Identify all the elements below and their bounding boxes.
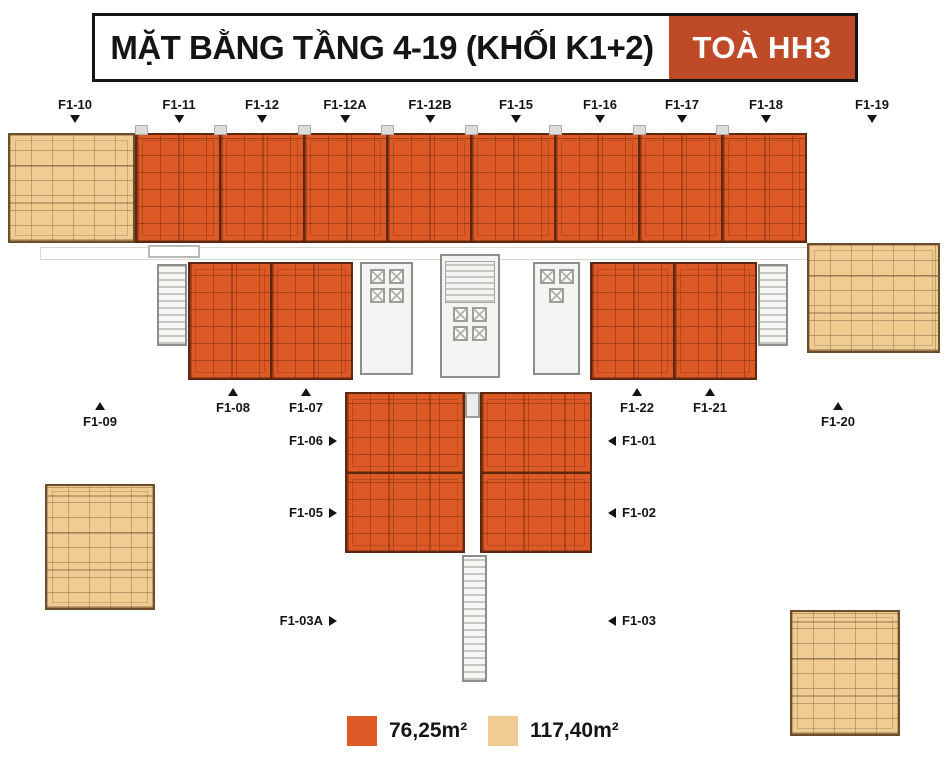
unit-label-f1-01: F1-01 bbox=[608, 433, 656, 448]
mid-left-small-units bbox=[188, 262, 353, 380]
marker-left-icon bbox=[608, 436, 616, 446]
elevator-icon bbox=[540, 269, 555, 284]
unit-label-f1-18: F1-18 bbox=[749, 97, 783, 123]
marker-down-icon bbox=[761, 115, 771, 123]
unit-block-f1-12 bbox=[219, 135, 303, 241]
elevator-icon bbox=[472, 326, 487, 341]
unit-block-f1-07 bbox=[272, 264, 352, 378]
unit-block-f1-06 bbox=[347, 394, 463, 474]
unit-label-f1-21: F1-21 bbox=[693, 388, 727, 415]
elevator-icon bbox=[453, 307, 468, 322]
unit-block-f1-18 bbox=[721, 135, 805, 241]
unit-block-f1-21 bbox=[675, 264, 756, 378]
legend-swatch-small-unit bbox=[347, 716, 377, 746]
unit-label-f1-17: F1-17 bbox=[665, 97, 699, 123]
unit-label-text: F1-15 bbox=[499, 97, 533, 112]
marker-left-icon bbox=[608, 616, 616, 626]
elevator-icon bbox=[549, 288, 564, 303]
marker-down-icon bbox=[425, 115, 435, 123]
stair-core-bottom bbox=[462, 555, 487, 682]
stair-core-right bbox=[758, 264, 788, 346]
unit-label-f1-10: F1-10 bbox=[58, 97, 92, 123]
unit-label-f1-15: F1-15 bbox=[499, 97, 533, 123]
unit-label-text: F1-05 bbox=[289, 505, 323, 520]
marker-down-icon bbox=[677, 115, 687, 123]
marker-down-icon bbox=[174, 115, 184, 123]
unit-block-f1-19 bbox=[807, 243, 940, 353]
elevator-icon bbox=[559, 269, 574, 284]
unit-label-text: F1-09 bbox=[83, 414, 117, 429]
elevator-icon bbox=[389, 288, 404, 303]
elevator-core-left bbox=[360, 262, 413, 375]
marker-left-icon bbox=[608, 508, 616, 518]
mid-right-small-units bbox=[590, 262, 757, 380]
unit-label-text: F1-17 bbox=[665, 97, 699, 112]
service-shaft bbox=[465, 392, 480, 418]
marker-up-icon bbox=[95, 402, 105, 410]
unit-label-text: F1-12 bbox=[245, 97, 279, 112]
unit-block-f1-02 bbox=[482, 474, 590, 552]
marker-up-icon bbox=[228, 388, 238, 396]
unit-label-text: F1-07 bbox=[289, 400, 323, 415]
legend-label-small-unit: 76,25m² bbox=[389, 719, 467, 743]
marker-right-icon bbox=[329, 616, 337, 626]
unit-label-text: F1-16 bbox=[583, 97, 617, 112]
unit-label-f1-02: F1-02 bbox=[608, 505, 656, 520]
tower-badge: TOÀ HH3 bbox=[669, 16, 855, 79]
marker-down-icon bbox=[340, 115, 350, 123]
unit-block-f1-12b bbox=[386, 135, 470, 241]
unit-label-text: F1-08 bbox=[216, 400, 250, 415]
unit-label-f1-19: F1-19 bbox=[855, 97, 889, 123]
unit-label-f1-06: F1-06 bbox=[289, 433, 337, 448]
right-wing-small-units bbox=[480, 392, 592, 553]
elevator-core-right bbox=[533, 262, 580, 375]
unit-label-f1-16: F1-16 bbox=[583, 97, 617, 123]
marker-down-icon bbox=[257, 115, 267, 123]
stair-core-left bbox=[157, 264, 187, 346]
marker-up-icon bbox=[833, 402, 843, 410]
unit-block-f1-16 bbox=[554, 135, 638, 241]
unit-label-text: F1-12B bbox=[408, 97, 451, 112]
unit-label-text: F1-10 bbox=[58, 97, 92, 112]
legend-swatch-large-unit bbox=[488, 716, 518, 746]
unit-label-f1-12a: F1-12A bbox=[323, 97, 366, 123]
unit-label-f1-05: F1-05 bbox=[289, 505, 337, 520]
marker-up-icon bbox=[632, 388, 642, 396]
marker-down-icon bbox=[595, 115, 605, 123]
unit-block-f1-09 bbox=[45, 484, 155, 610]
marker-up-icon bbox=[301, 388, 311, 396]
unit-label-text: F1-02 bbox=[622, 505, 656, 520]
marker-down-icon bbox=[867, 115, 877, 123]
elevator-core-center bbox=[440, 254, 500, 378]
unit-label-f1-03a: F1-03A bbox=[280, 613, 337, 628]
unit-label-text: F1-20 bbox=[821, 414, 855, 429]
unit-block-f1-22 bbox=[592, 264, 675, 378]
left-wing-small-units bbox=[345, 392, 465, 553]
unit-label-f1-22: F1-22 bbox=[620, 388, 654, 415]
elevator-icon bbox=[389, 269, 404, 284]
unit-label-f1-12b: F1-12B bbox=[408, 97, 451, 123]
unit-label-f1-08: F1-08 bbox=[216, 388, 250, 415]
unit-label-text: F1-03A bbox=[280, 613, 323, 628]
marker-right-icon bbox=[329, 436, 337, 446]
marker-down-icon bbox=[511, 115, 521, 123]
elevator-icon bbox=[472, 307, 487, 322]
unit-label-f1-09: F1-09 bbox=[83, 402, 117, 429]
unit-label-f1-11: F1-11 bbox=[162, 97, 195, 123]
unit-label-f1-20: F1-20 bbox=[821, 402, 855, 429]
elevator-icon bbox=[370, 288, 385, 303]
floor-plan-page: MẶT BẰNG TẦNG 4-19 (KHỐI K1+2) TOÀ HH3 F… bbox=[0, 0, 948, 771]
page-title: MẶT BẰNG TẦNG 4-19 (KHỐI K1+2) bbox=[95, 16, 669, 79]
unit-label-f1-12: F1-12 bbox=[245, 97, 279, 123]
unit-block-f1-12a bbox=[303, 135, 387, 241]
unit-label-text: F1-19 bbox=[855, 97, 889, 112]
unit-block-f1-17 bbox=[638, 135, 722, 241]
marker-up-icon bbox=[705, 388, 715, 396]
elevator-icon bbox=[453, 326, 468, 341]
unit-label-f1-07: F1-07 bbox=[289, 388, 323, 415]
elevator-icon bbox=[370, 269, 385, 284]
unit-label-text: F1-22 bbox=[620, 400, 654, 415]
unit-block-f1-20 bbox=[790, 610, 900, 736]
unit-block-f1-01 bbox=[482, 394, 590, 474]
stairs-icon bbox=[445, 261, 495, 303]
marker-down-icon bbox=[70, 115, 80, 123]
unit-label-text: F1-03 bbox=[622, 613, 656, 628]
balcony-detail bbox=[148, 245, 200, 258]
marker-right-icon bbox=[329, 508, 337, 518]
plan-header: MẶT BẰNG TẦNG 4-19 (KHỐI K1+2) TOÀ HH3 bbox=[92, 13, 858, 82]
unit-label-text: F1-11 bbox=[162, 97, 195, 112]
unit-label-text: F1-06 bbox=[289, 433, 323, 448]
unit-label-text: F1-01 bbox=[622, 433, 656, 448]
unit-label-text: F1-21 bbox=[693, 400, 727, 415]
unit-block-f1-15 bbox=[470, 135, 554, 241]
top-strip-small-units bbox=[135, 133, 807, 243]
unit-label-text: F1-18 bbox=[749, 97, 783, 112]
unit-block-f1-08 bbox=[190, 264, 272, 378]
unit-label-f1-03: F1-03 bbox=[608, 613, 656, 628]
unit-block-f1-10 bbox=[8, 133, 135, 243]
unit-block-f1-05 bbox=[347, 474, 463, 552]
unit-block-f1-11 bbox=[137, 135, 219, 241]
unit-label-text: F1-12A bbox=[323, 97, 366, 112]
legend-label-large-unit: 117,40m² bbox=[530, 719, 619, 743]
